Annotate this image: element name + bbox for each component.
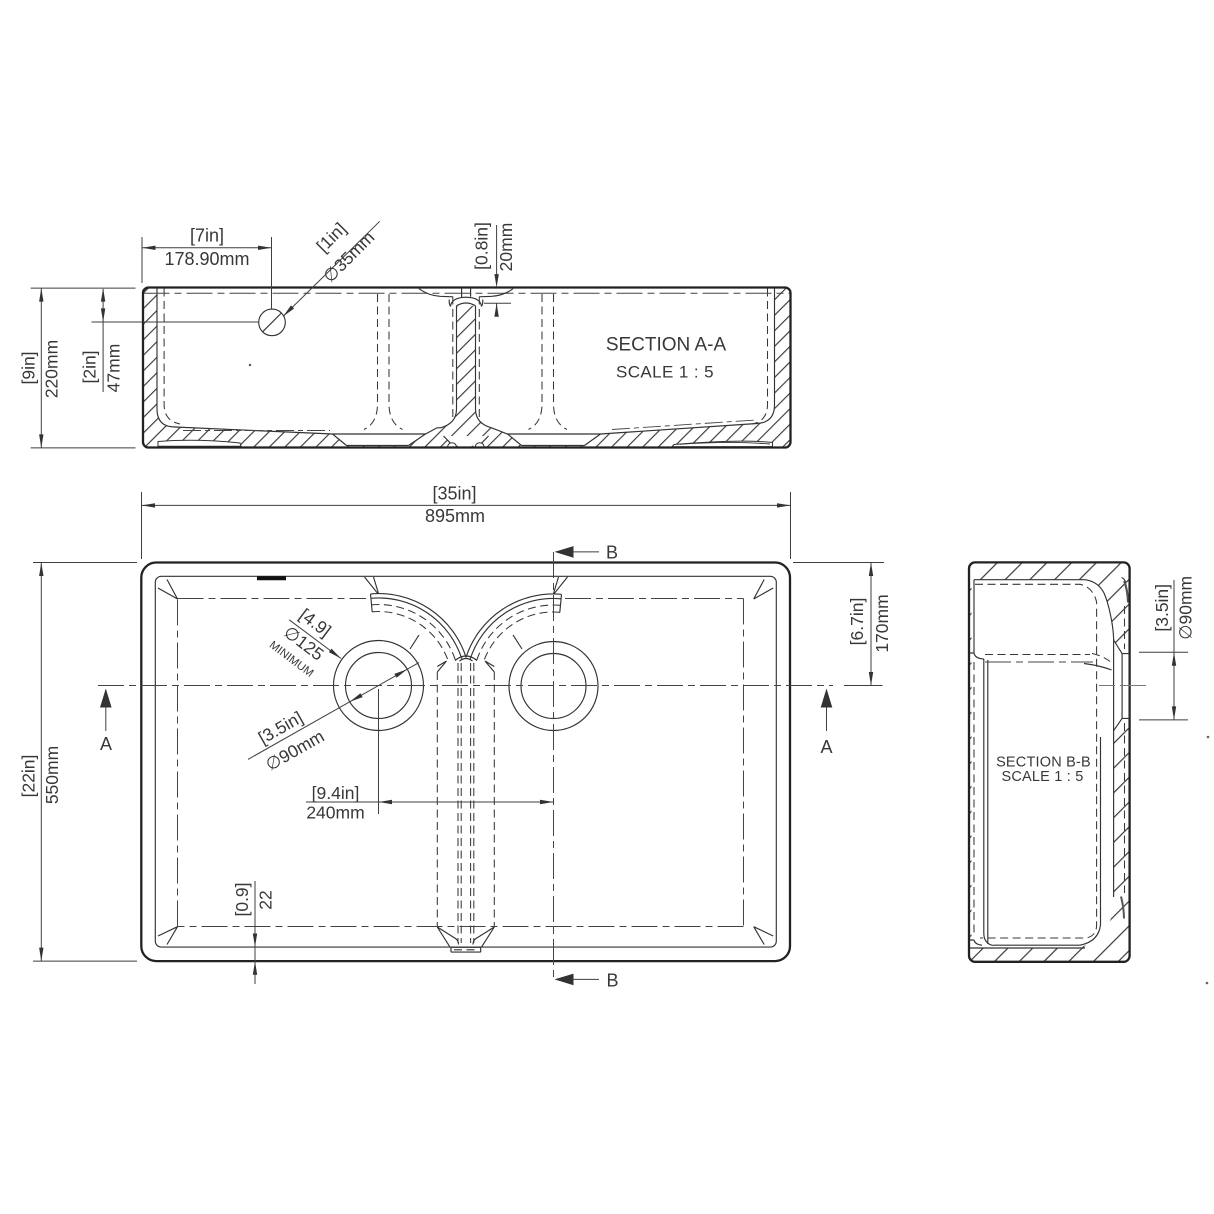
svg-text:[7in]: [7in] — [190, 226, 224, 246]
svg-text:[9.4in]: [9.4in] — [312, 783, 360, 803]
svg-text:SCALE 1 : 5: SCALE 1 : 5 — [616, 363, 714, 382]
svg-text:[2in]: [2in] — [80, 350, 100, 383]
svg-text:B: B — [606, 971, 618, 991]
svg-text:SCALE 1 : 5: SCALE 1 : 5 — [1002, 769, 1084, 785]
svg-text:178.90mm: 178.90mm — [164, 249, 249, 269]
svg-text:[9in]: [9in] — [19, 351, 39, 384]
svg-text:20mm: 20mm — [496, 223, 516, 272]
svg-text:550mm: 550mm — [42, 746, 62, 804]
svg-text:240mm: 240mm — [306, 803, 364, 823]
svg-text:B: B — [606, 543, 618, 563]
svg-text:170mm: 170mm — [872, 594, 892, 652]
svg-text:[22in]: [22in] — [19, 755, 39, 798]
svg-text:47mm: 47mm — [104, 344, 124, 393]
svg-text:∅90mm: ∅90mm — [1176, 576, 1196, 640]
svg-text:[6.7in]: [6.7in] — [847, 598, 867, 646]
svg-text:895mm: 895mm — [425, 506, 485, 526]
svg-text:A: A — [820, 737, 832, 757]
svg-text:A: A — [100, 734, 112, 754]
svg-text:[3.5in]: [3.5in] — [1152, 584, 1172, 632]
svg-text:[0.9]: [0.9] — [232, 882, 252, 916]
svg-text:22: 22 — [256, 890, 276, 909]
svg-text:220mm: 220mm — [42, 340, 62, 398]
svg-text:[0.8in]: [0.8in] — [472, 222, 492, 270]
svg-text:[35in]: [35in] — [432, 484, 476, 504]
svg-text:SECTION A-A: SECTION A-A — [606, 335, 727, 356]
